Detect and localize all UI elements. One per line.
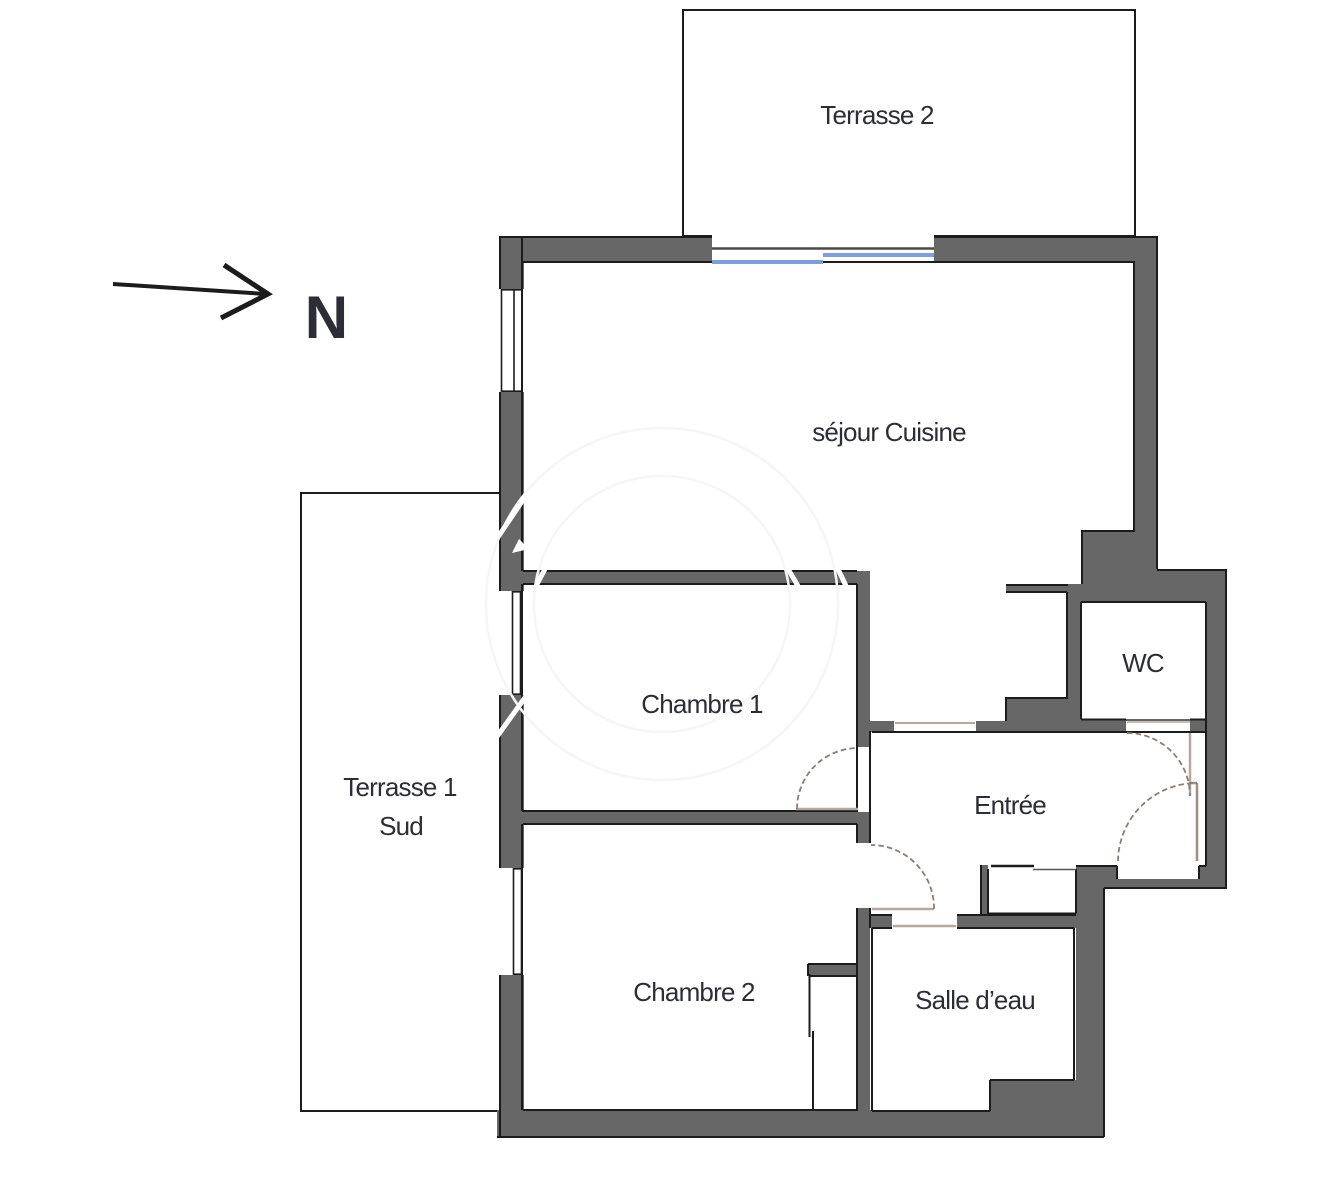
svg-text:Terrasse 1: Terrasse 1 xyxy=(343,772,457,802)
svg-text:Sud: Sud xyxy=(379,811,423,841)
svg-text:Salle d’eau: Salle d’eau xyxy=(915,985,1035,1015)
svg-text:Chambre 1: Chambre 1 xyxy=(641,689,763,719)
svg-text:séjour Cuisine: séjour Cuisine xyxy=(812,417,966,447)
svg-text:Chambre 2: Chambre 2 xyxy=(633,977,755,1007)
svg-text:N: N xyxy=(305,284,348,351)
svg-text:Terrasse 2: Terrasse 2 xyxy=(820,100,934,130)
svg-text:WC: WC xyxy=(1122,648,1164,678)
svg-text:Entrée: Entrée xyxy=(974,790,1046,820)
